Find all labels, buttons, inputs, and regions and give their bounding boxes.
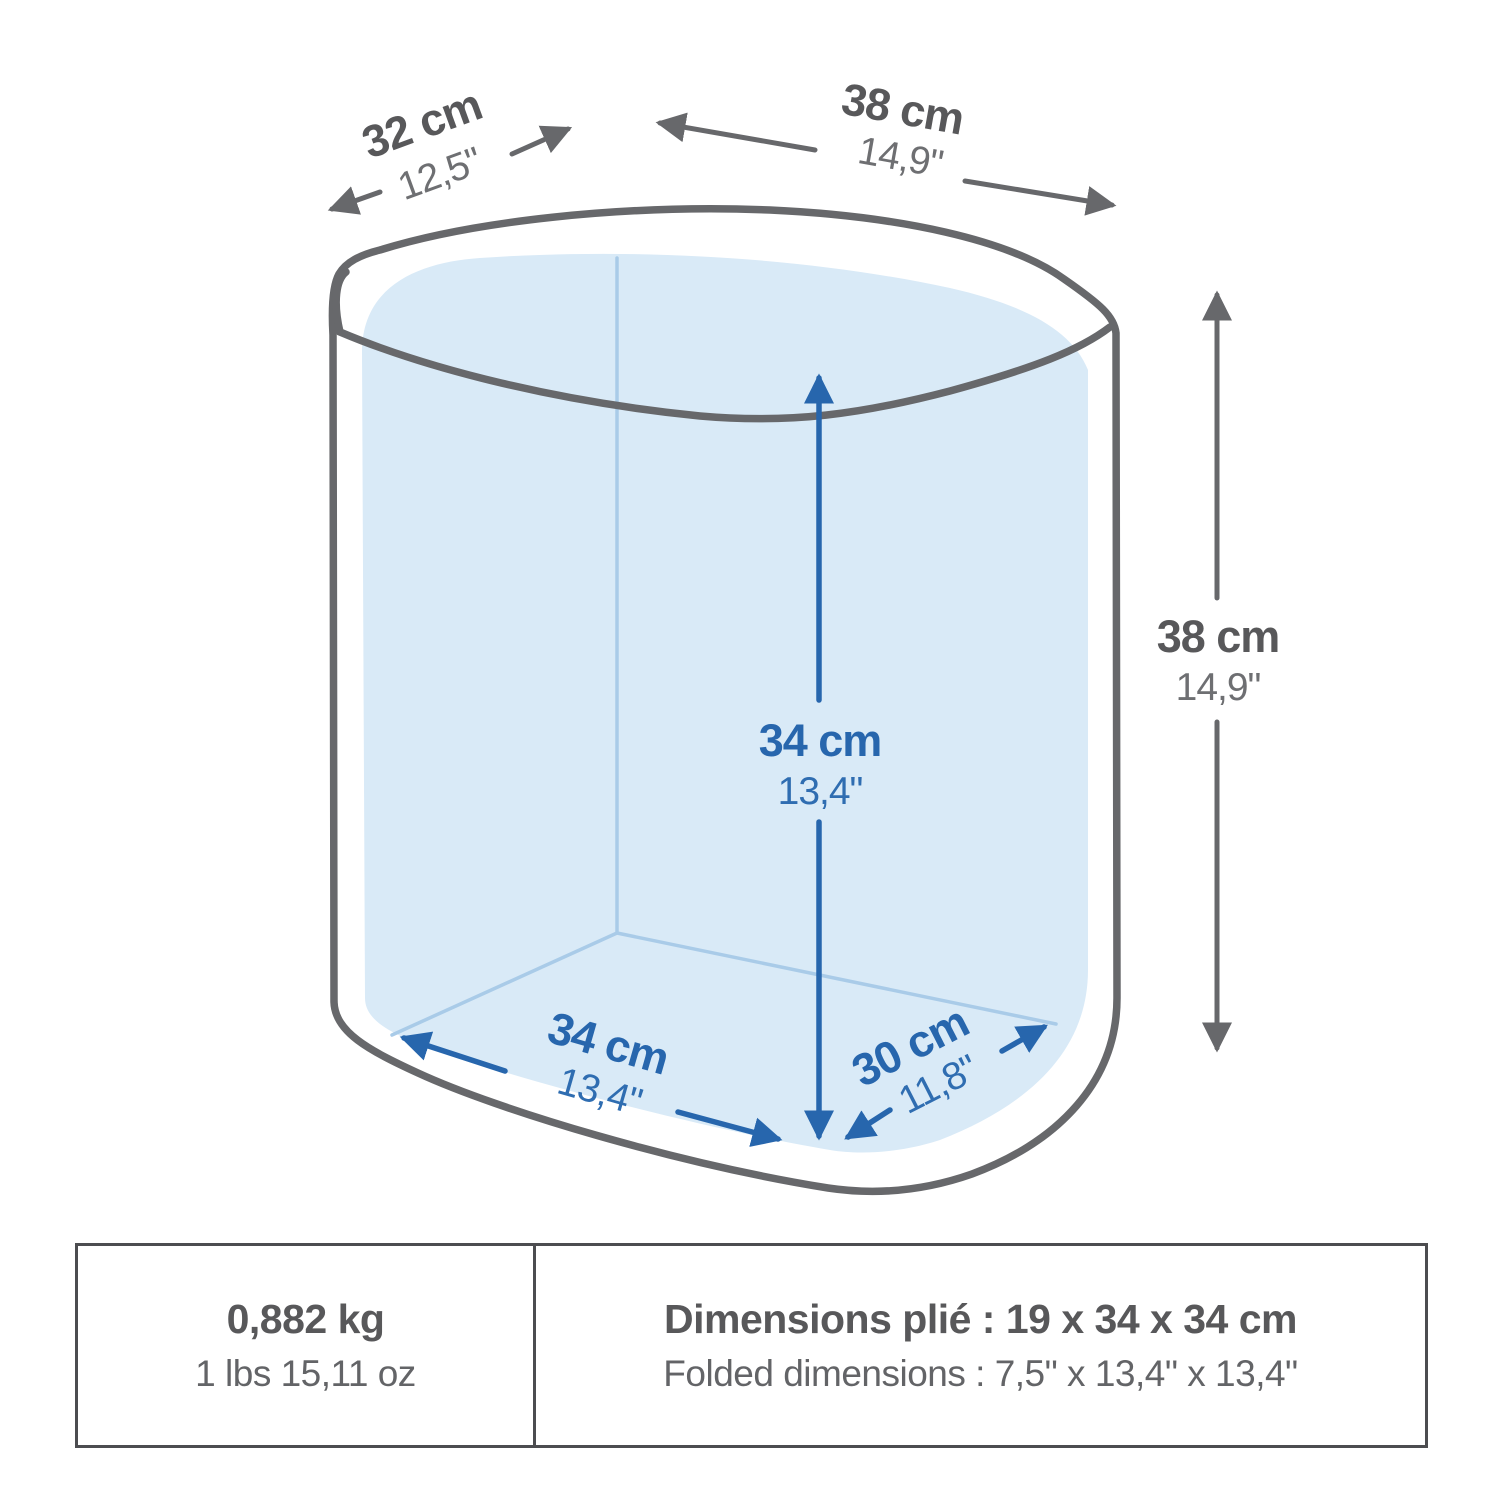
spec-weight-cell: 0,882 kg 1 lbs 15,11 oz [78,1246,536,1445]
weight-lbs-value: 1 lbs 15,11 oz [195,1353,416,1395]
spec-table: 0,882 kg 1 lbs 15,11 oz Dimensions plié … [75,1243,1428,1448]
dim-inner-height-cm-label: 34 cm [759,715,882,766]
folded-dimensions-fr: Dimensions plié : 19 x 34 x 34 cm [664,1296,1297,1343]
spec-folded-dimensions-cell: Dimensions plié : 19 x 34 x 34 cm Folded… [536,1246,1425,1445]
dim-top-depth-cm-label: 38 cm [838,73,968,145]
dim-top-depth-arrow-left [660,123,815,150]
dim-inner-height-inch-label: 13,4" [778,770,863,813]
weight-kg-value: 0,882 kg [227,1296,385,1343]
container-interior-fill [362,254,1088,1153]
dim-top-depth-arrow-right [965,181,1112,205]
container-drawing: 32 cm 12,5" 38 cm 14,9" 38 cm 14,9" 34 c… [0,0,1500,1240]
folded-dimensions-en: Folded dimensions : 7,5" x 13,4" x 13,4" [663,1353,1297,1395]
product-dimensions-diagram: 32 cm 12,5" 38 cm 14,9" 38 cm 14,9" 34 c… [0,0,1500,1500]
dim-outer-height-inch-label: 14,9" [1176,666,1261,709]
dim-outer-height-cm-label: 38 cm [1157,611,1280,662]
dim-top-width-arrow-left [332,192,380,209]
dim-top-width-arrow-right [512,129,568,154]
